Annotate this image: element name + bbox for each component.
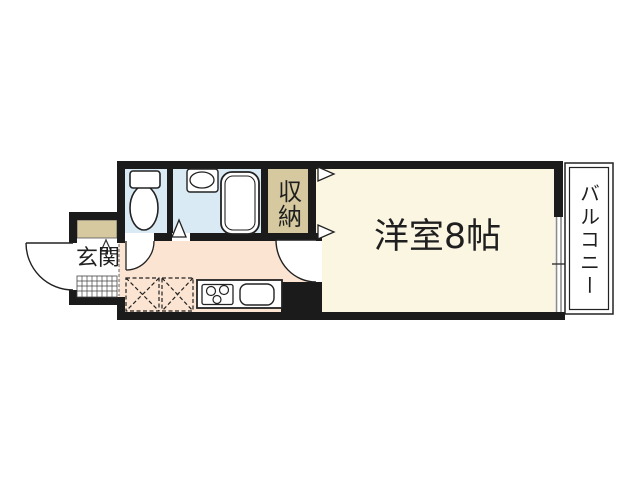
wall-east-upper xyxy=(554,161,563,217)
wall-south xyxy=(117,312,565,320)
entrance-door-swing xyxy=(26,243,73,290)
storage-label: 収納 xyxy=(272,172,304,236)
wall-entry-north xyxy=(69,212,125,220)
wall-entry-west-upper xyxy=(69,212,77,243)
wash-basin xyxy=(187,169,218,192)
wall-north xyxy=(117,161,563,169)
burner-2 xyxy=(220,286,229,295)
wall-wet-south-left xyxy=(154,233,172,241)
wall-entry-south xyxy=(69,297,125,305)
kitchen-sink xyxy=(240,284,274,305)
wall-toilet-bath-divider xyxy=(167,168,173,233)
entry-tile-hatch xyxy=(77,276,117,297)
shoe-cabinet xyxy=(77,220,117,238)
wall-hall-room-chunk xyxy=(281,282,322,312)
main-room-label: 洋室8帖 xyxy=(330,217,545,257)
toilet xyxy=(130,171,160,230)
wall-west-upper xyxy=(117,161,125,243)
burner-3 xyxy=(213,296,221,304)
burner-1 xyxy=(207,287,216,296)
wall-bath-storage-divider xyxy=(261,168,268,233)
bathtub xyxy=(221,172,259,234)
floor-plan-canvas: 洋室8帖 玄関 収納 バルコニー xyxy=(0,0,640,480)
wall-storage-east xyxy=(308,168,316,241)
entrance-label: 玄関 xyxy=(70,246,126,272)
balcony-label: バルコニー xyxy=(576,170,602,310)
kitchen-counter xyxy=(197,280,282,308)
